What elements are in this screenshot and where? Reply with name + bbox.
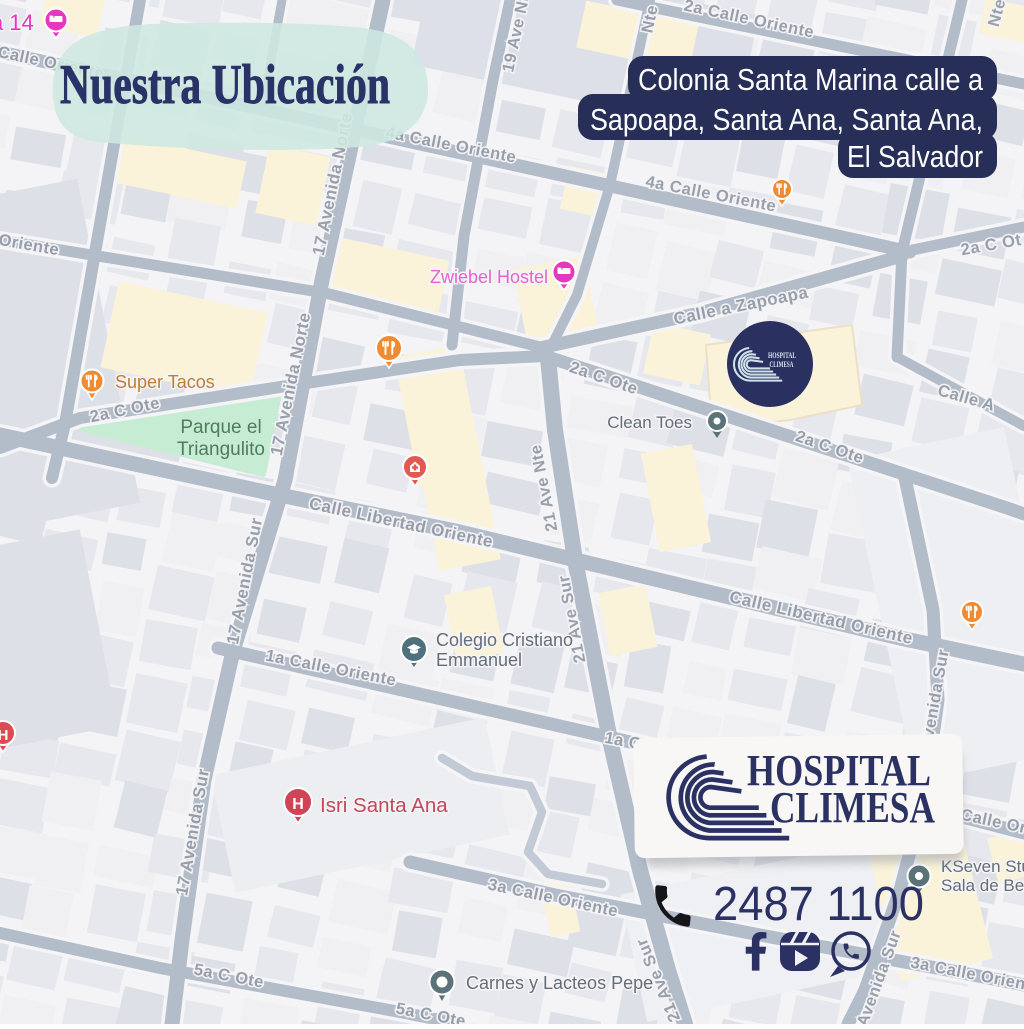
svg-text:Villa 14: Villa 14 <box>0 10 34 35</box>
svg-text:2487 1100: 2487 1100 <box>713 877 924 931</box>
svg-text:Sapoapa, Santa Ana, Santa Ana,: Sapoapa, Santa Ana, Santa Ana, <box>590 102 983 137</box>
svg-text:CLIMESA: CLIMESA <box>770 783 935 832</box>
svg-text:Zwiebel Hostel: Zwiebel Hostel <box>430 267 548 287</box>
svg-text:Colegio Cristiano: Colegio Cristiano <box>436 630 573 650</box>
svg-text:Super Tacos: Super Tacos <box>115 372 215 392</box>
svg-text:HOSPITAL: HOSPITAL <box>768 351 796 360</box>
svg-text:Clean Toes: Clean Toes <box>607 413 692 432</box>
svg-text:Parque el: Parque el <box>180 417 261 438</box>
svg-text:CLIMESA: CLIMESA <box>770 360 794 369</box>
svg-text:Triangulito: Triangulito <box>177 439 265 460</box>
svg-text:H: H <box>0 727 8 744</box>
svg-text:Nuestra Ubicación: Nuestra Ubicación <box>60 54 390 116</box>
svg-text:El Salvador: El Salvador <box>847 139 983 174</box>
svg-text:Emmanuel: Emmanuel <box>436 650 522 670</box>
svg-text:Colonia Santa Marina calle a: Colonia Santa Marina calle a <box>638 62 984 97</box>
svg-text:Carnes y Lacteos Pepe: Carnes y Lacteos Pepe <box>466 973 653 993</box>
svg-text:Isri Santa Ana: Isri Santa Ana <box>320 794 448 817</box>
svg-text:H: H <box>292 796 304 813</box>
svg-text:Sala de Bel: Sala de Bel <box>941 876 1024 895</box>
